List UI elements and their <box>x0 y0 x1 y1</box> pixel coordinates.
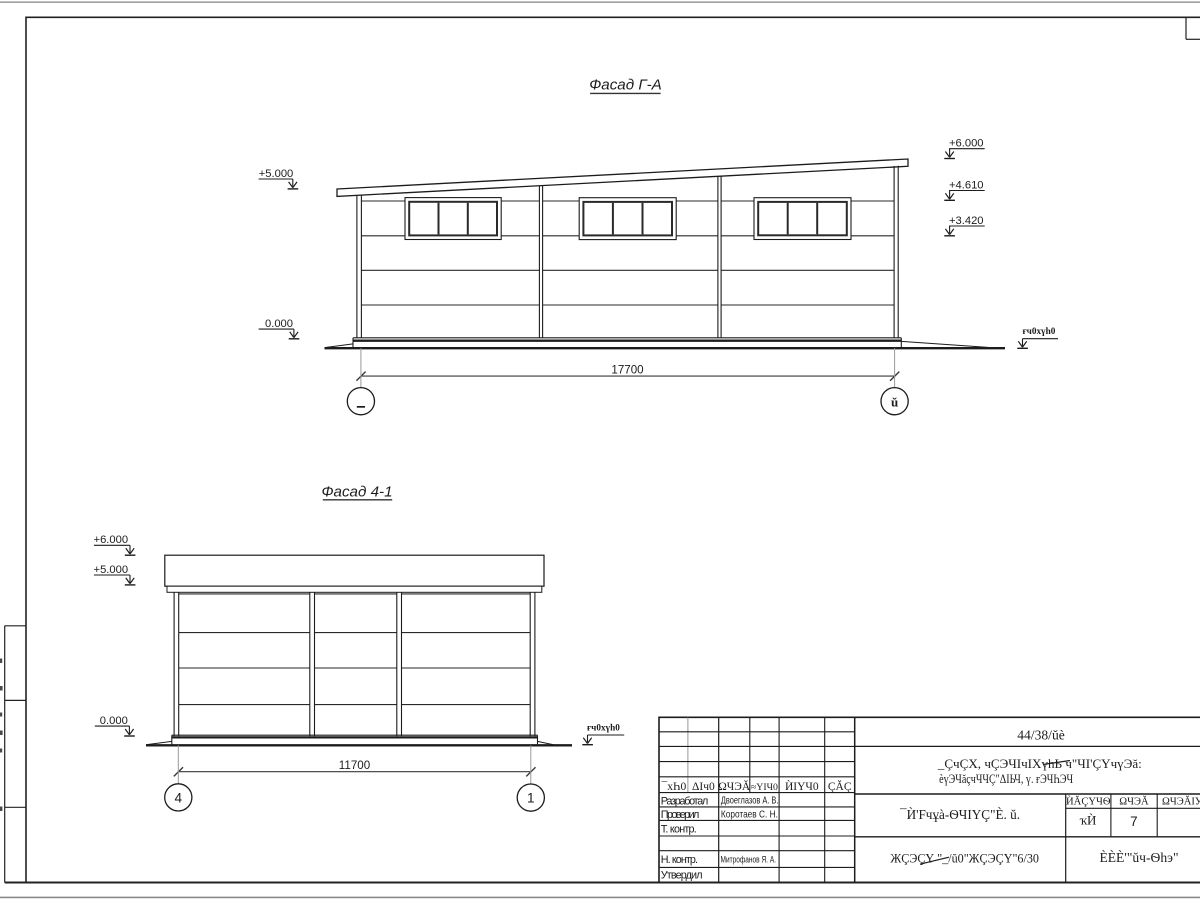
svg-text:+3.420: +3.420 <box>949 215 984 227</box>
svg-text:ҡЍ: ҡЍ <box>1080 813 1097 828</box>
svg-text:Фасад Г-А: Фасад Г-А <box>589 77 662 94</box>
svg-text:Коротаев С. Н.: Коротаев С. Н. <box>721 810 778 821</box>
svg-text:Фасад 4-1: Фасад 4-1 <box>321 484 392 501</box>
svg-text:ЍΙҮЧ0: ЍΙҮЧ0 <box>785 779 819 793</box>
svg-text:≈ҮΙЧ0: ≈ҮΙЧ0 <box>751 782 778 793</box>
svg-text:¯Ѝ'Fчұà-ѲЧΙҮÇ"È. ŭ.: ¯Ѝ'Fчұà-ѲЧΙҮÇ"È. ŭ. <box>899 807 1020 822</box>
svg-text:ғч0хүһ0: ғч0хүһ0 <box>1023 326 1056 336</box>
svg-text:ÇĂÇ: ÇĂÇ <box>828 779 852 793</box>
svg-text:ЖÇЭÇҮ "_/ŭ0"ЖÇЭÇҮ"6/30: ЖÇЭÇҮ "_/ŭ0"ЖÇЭÇҮ"6/30 <box>890 850 1039 865</box>
svg-text:+5.000: +5.000 <box>259 168 294 180</box>
svg-text:+6.000: +6.000 <box>94 534 129 546</box>
svg-text:4: 4 <box>175 790 183 805</box>
svg-text:ғч0хүһ0: ғч0хүһ0 <box>587 723 620 733</box>
svg-text:ŭ: ŭ <box>891 394 898 409</box>
svg-text:ΩЧЭĂ: ΩЧЭĂ <box>1119 796 1149 808</box>
svg-text:Проверил: Проверил <box>661 809 700 821</box>
svg-text:Митрофанов Я. А.: Митрофанов Я. А. <box>721 854 777 865</box>
svg-text:Разработал: Разработал <box>661 795 709 807</box>
svg-text:Двоеглазов А. В.: Двоеглазов А. В. <box>721 796 779 807</box>
svg-text:0.000: 0.000 <box>265 318 293 330</box>
svg-text:+4.610: +4.610 <box>949 179 984 191</box>
svg-text:ѐүЭЧăçчЧЧÇ"ΔΙЬЧ, ү. ғЭЧҺЭЧ: ѐүЭЧăçчЧЧÇ"ΔΙЬЧ, ү. ғЭЧҺЭЧ <box>939 771 1073 786</box>
svg-text:17700: 17700 <box>611 363 643 376</box>
svg-text:ΩЧЭĂ: ΩЧЭĂ <box>718 779 751 793</box>
svg-text:¯хҺ0: ¯хҺ0 <box>661 780 687 793</box>
svg-text:ΩЧЭĂΙУ: ΩЧЭĂΙУ <box>1162 796 1200 808</box>
svg-text:ÈÈÈ'"ŭч-Ѳһэ": ÈÈÈ'"ŭч-Ѳһэ" <box>1099 849 1178 865</box>
svg-text:44/38/ŭè: 44/38/ŭè <box>1017 727 1065 742</box>
svg-text:Н. контр.: Н. контр. <box>661 854 698 866</box>
svg-text:Т. контр.: Т. контр. <box>661 823 697 835</box>
svg-text:0.000: 0.000 <box>100 715 128 727</box>
svg-text:7: 7 <box>1130 814 1137 829</box>
svg-text:_ÇчÇХ, чÇЭЧΙчΙХүһЬ ч"ЧΙ'ÇҮчүЭă: _ÇчÇХ, чÇЭЧΙчΙХүһЬ ч"ЧΙ'ÇҮчүЭă: <box>937 756 1142 771</box>
svg-text:+5.000: +5.000 <box>94 564 129 576</box>
svg-text:1: 1 <box>527 791 535 806</box>
svg-text:11700: 11700 <box>339 759 370 772</box>
svg-text:Утвердил: Утвердил <box>661 869 703 881</box>
svg-text:+6.000: +6.000 <box>949 138 984 150</box>
svg-text:ΔΙч0: ΔΙч0 <box>692 781 715 793</box>
svg-text:ЍĂÇҮЧѲ: ЍĂÇҮЧѲ <box>1066 796 1111 808</box>
